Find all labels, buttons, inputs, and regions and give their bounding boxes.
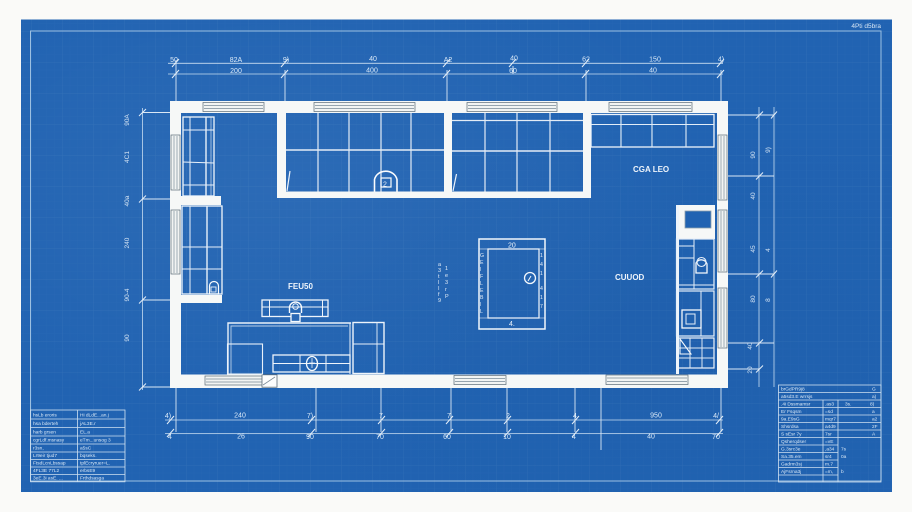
svg-text:=m,: =m, <box>825 470 833 475</box>
svg-text:EL.a: EL.a <box>80 430 90 436</box>
svg-text:4: 4 <box>572 434 576 441</box>
svg-text:Lr9eir tjud7: Lr9eir tjud7 <box>33 453 57 459</box>
svg-text:10: 10 <box>503 434 511 441</box>
svg-text:60: 60 <box>443 434 451 441</box>
svg-text:1: 1 <box>540 253 543 259</box>
svg-text:jAL3E.r: jAL3E.r <box>79 421 96 427</box>
svg-text:2: 2 <box>506 413 510 420</box>
svg-text:,a34: ,a34 <box>825 447 835 453</box>
svg-text:I: I <box>480 302 481 308</box>
svg-text:hsa bderteh: hsa bderteh <box>33 421 59 427</box>
svg-text:sr4: sr4 <box>825 454 832 460</box>
svg-text:G: G <box>480 253 484 259</box>
svg-text:G: G <box>872 387 876 393</box>
svg-text:=vE: =vE <box>825 439 833 445</box>
svg-text:62: 62 <box>582 57 590 64</box>
svg-text:AjFsrna3j: AjFsrna3j <box>781 469 801 475</box>
svg-text:0a: 0a <box>841 454 847 460</box>
svg-text:Shsrdsa: Shsrdsa <box>781 424 799 430</box>
svg-text:e: e <box>445 273 448 279</box>
svg-text:Qsherqdser: Qsherqdser <box>781 439 806 445</box>
svg-text:brGdPR9j8: brGdPR9j8 <box>781 387 805 393</box>
svg-text:90: 90 <box>306 434 314 441</box>
svg-text:2: 2 <box>383 182 387 189</box>
svg-text:70: 70 <box>712 434 720 441</box>
svg-text:40: 40 <box>510 56 518 63</box>
svg-text:4: 4 <box>540 286 543 292</box>
svg-text:erbsE9: erbsE9 <box>80 468 96 474</box>
svg-text:40: 40 <box>750 192 757 200</box>
svg-text:4: 4 <box>765 248 772 252</box>
svg-text:950: 950 <box>650 413 662 420</box>
svg-text:4Pti d5bra: 4Pti d5bra <box>851 23 881 30</box>
svg-text:E: E <box>480 260 484 266</box>
svg-text:a: a <box>872 410 875 415</box>
svg-text:2F: 2F <box>872 424 878 430</box>
svg-text:a5sC: a5sC <box>80 446 92 452</box>
svg-text:Hi dLdE...an.j: Hi dLdE...an.j <box>80 413 109 419</box>
svg-text:b: b <box>841 469 844 475</box>
svg-text:4C1: 4C1 <box>124 151 131 163</box>
svg-text:240: 240 <box>124 237 131 248</box>
svg-text:26: 26 <box>237 434 245 441</box>
svg-text:1: 1 <box>540 295 543 301</box>
svg-text:40: 40 <box>369 56 377 63</box>
svg-text:Sa.35.em: Sa.35.em <box>781 454 802 460</box>
svg-text:mqr7: mqr7 <box>825 417 836 423</box>
svg-text:7s: 7s <box>841 447 847 453</box>
svg-text:Frthdsasga: Frthdsasga <box>80 476 104 482</box>
svg-text:S sEsr 7y: S sEsr 7y <box>781 432 802 438</box>
svg-text:3: 3 <box>445 280 448 286</box>
svg-text:L: L <box>480 281 483 287</box>
svg-text:9): 9) <box>765 147 772 153</box>
svg-text:7: 7 <box>540 304 543 310</box>
svg-text:B: B <box>480 295 484 301</box>
svg-text:G.3src3e: G.3src3e <box>781 447 801 453</box>
svg-text:40: 40 <box>649 68 657 75</box>
svg-text:FtsdLcnLbssap: FtsdLcnLbssap <box>33 461 66 467</box>
svg-text:150: 150 <box>649 57 661 64</box>
svg-text:4): 4) <box>165 413 171 420</box>
svg-text:a): a) <box>872 394 877 400</box>
svg-text:4/: 4/ <box>713 413 719 420</box>
svg-text:9): 9) <box>283 57 289 64</box>
svg-text:.4i Dssmamsr: .4i Dssmamsr <box>781 402 811 408</box>
svg-text:50: 50 <box>170 57 178 64</box>
svg-text:A2: A2 <box>444 57 453 64</box>
svg-text:4): 4) <box>718 57 724 64</box>
svg-text:a2: a2 <box>872 417 878 423</box>
svg-text:45: 45 <box>750 245 757 253</box>
svg-text:1: 1 <box>445 266 448 272</box>
svg-text:70: 70 <box>376 434 384 441</box>
svg-text:I: I <box>480 267 481 273</box>
svg-text:20: 20 <box>747 366 754 374</box>
svg-text:harb grsen: harb grsen <box>33 430 56 436</box>
svg-text:40: 40 <box>747 342 754 350</box>
svg-text:CUUOD: CUUOD <box>615 273 645 282</box>
svg-text:7: 7 <box>447 413 451 420</box>
svg-text:90A: 90A <box>124 114 131 126</box>
svg-text:3s.: 3s. <box>845 402 851 408</box>
svg-text:80: 80 <box>750 295 757 303</box>
svg-text:bqseks.: bqseks. <box>80 453 97 459</box>
svg-text:r3sn,: r3sn, <box>33 446 44 452</box>
svg-text:eTm...unsog 3: eTm...unsog 3 <box>80 438 111 444</box>
svg-text:90: 90 <box>124 334 131 342</box>
svg-text:200: 200 <box>230 68 242 75</box>
svg-text:7: 7 <box>379 413 383 420</box>
svg-text:60: 60 <box>509 68 517 75</box>
svg-text:CGA LEO: CGA LEO <box>633 165 669 174</box>
svg-text:7sr: 7sr <box>825 432 832 438</box>
svg-text:4: 4 <box>168 434 172 441</box>
svg-text:a4d9: a4d9 <box>825 424 836 430</box>
svg-text:3eE.3i asE. ...: 3eE.3i asE. ... <box>33 476 63 482</box>
svg-text:4: 4 <box>573 413 577 420</box>
svg-text:40a: 40a <box>124 195 131 206</box>
svg-text:240: 240 <box>234 413 246 420</box>
svg-text:90-4: 90-4 <box>124 288 131 301</box>
svg-text:tplEcryruer=L.: tplEcryruer=L. <box>80 461 110 467</box>
svg-text:8: 8 <box>765 298 772 302</box>
svg-text:.as3: .as3 <box>825 402 834 408</box>
svg-text:Er Fsqsm: Er Fsqsm <box>781 409 802 415</box>
svg-text:hsLb eroris: hsLb eroris <box>33 413 57 419</box>
svg-text:L: L <box>480 309 483 315</box>
svg-text:8): 8) <box>870 402 875 408</box>
svg-text:F: F <box>480 274 483 280</box>
svg-text:82A: 82A <box>230 57 243 64</box>
svg-text:4.: 4. <box>509 321 515 328</box>
svg-text:4: 4 <box>540 262 543 268</box>
svg-text:P: P <box>445 294 449 300</box>
svg-text:a5sd3.E wrrsjs: a5sd3.E wrrsjs <box>781 394 813 400</box>
svg-text:7): 7) <box>307 413 313 420</box>
svg-text:9: 9 <box>438 298 441 304</box>
svg-text:40: 40 <box>647 434 655 441</box>
svg-text:1: 1 <box>540 271 543 277</box>
svg-text:9a.E9sG: 9a.E9sG <box>781 417 800 423</box>
svg-text:=sd: =sd <box>825 409 833 415</box>
svg-text:4FL3E 77L2: 4FL3E 77L2 <box>33 468 59 474</box>
svg-text:E: E <box>480 288 484 294</box>
svg-text:20: 20 <box>508 243 516 250</box>
svg-text:m.7: m.7 <box>825 462 833 468</box>
svg-text:FEU50: FEU50 <box>288 282 313 291</box>
svg-text:400: 400 <box>366 68 378 75</box>
svg-text:Gadrm3sj: Gadrm3sj <box>781 462 802 468</box>
svg-text:r: r <box>445 287 447 293</box>
svg-text:cgrLdf.msnasy: cgrLdf.msnasy <box>33 438 65 444</box>
svg-text:90: 90 <box>750 151 757 159</box>
